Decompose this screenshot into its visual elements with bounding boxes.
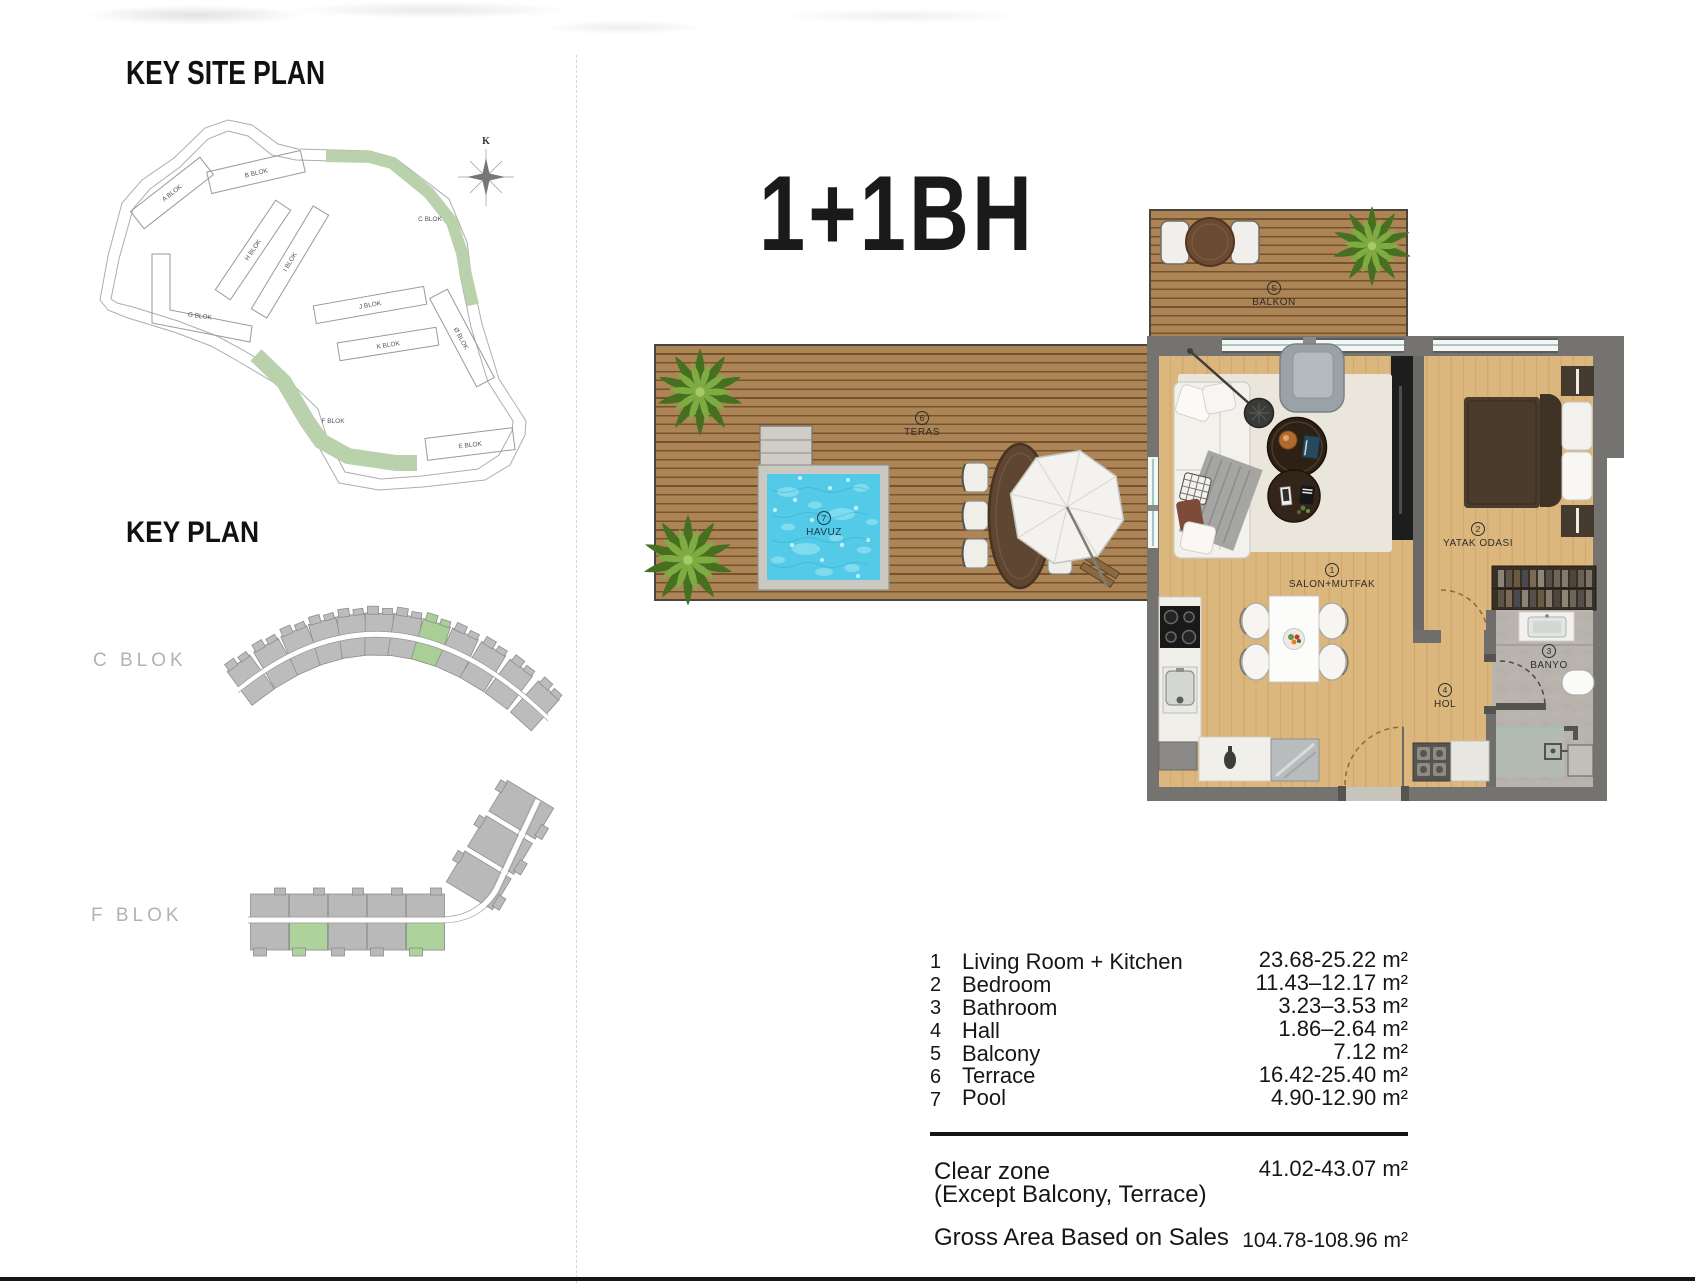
svg-text:H BLOK: H BLOK bbox=[244, 238, 264, 262]
svg-text:E BLOK: E BLOK bbox=[458, 441, 483, 451]
svg-text:B BLOK: B BLOK bbox=[244, 167, 269, 179]
svg-text:G BLOK: G BLOK bbox=[187, 311, 213, 321]
svg-text:J BLOK: J BLOK bbox=[358, 300, 382, 311]
svg-text:C BLOK: C BLOK bbox=[418, 216, 443, 223]
svg-text:F BLOK: F BLOK bbox=[321, 418, 345, 425]
svg-text:K BLOK: K BLOK bbox=[376, 340, 401, 351]
svg-text:Ø BLOK: Ø BLOK bbox=[452, 326, 470, 351]
svg-text:K: K bbox=[482, 136, 490, 147]
